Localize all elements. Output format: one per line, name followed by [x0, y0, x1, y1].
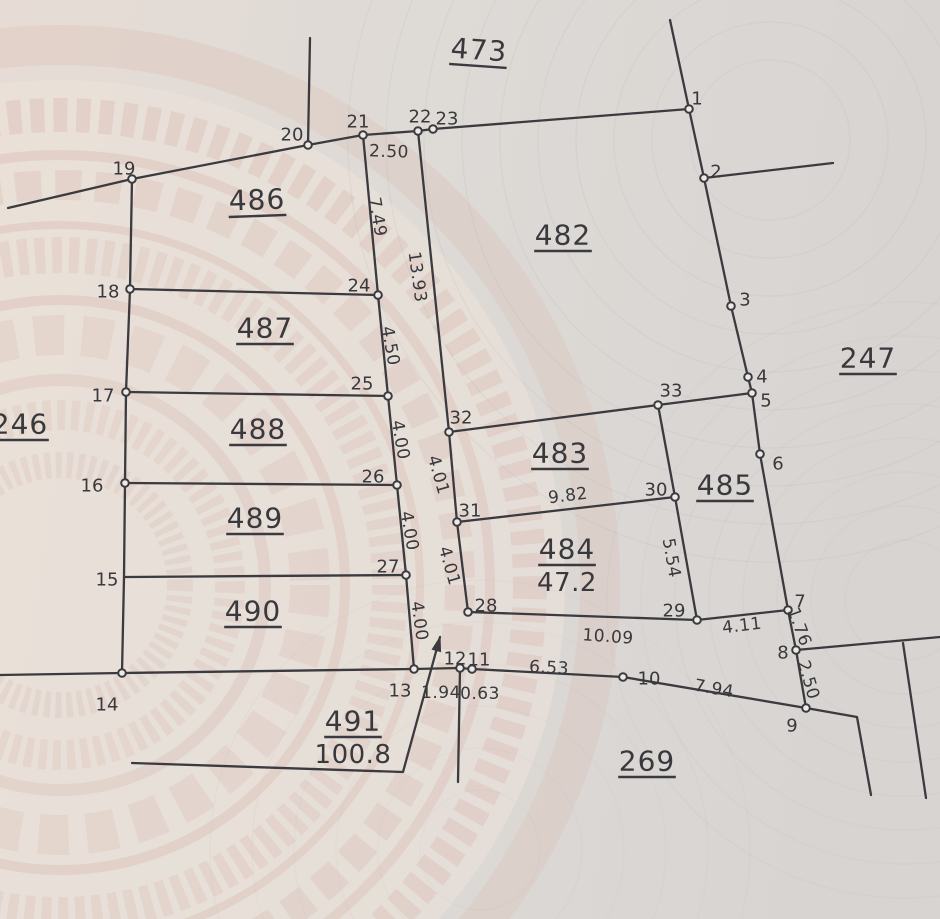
point-number-8: 8: [777, 643, 788, 664]
parcel-number: 485: [697, 469, 753, 502]
parcel-number: 473: [450, 32, 509, 69]
survey-point-22: [414, 127, 422, 135]
point-number-20: 20: [281, 125, 304, 146]
point-number-22: 22: [409, 107, 432, 128]
cadastral-map-svg: 1234567891011121314151617181920212223242…: [0, 0, 940, 919]
point-number-13: 13: [389, 681, 412, 702]
parcel-label-246: 246: [0, 408, 49, 441]
point-number-1: 1: [691, 89, 702, 110]
point-number-24: 24: [348, 276, 371, 297]
parcel-number: 269: [619, 745, 675, 778]
parcel-number: 247: [840, 342, 896, 375]
parcel-label-269: 269: [618, 745, 676, 778]
parcel-number: 246: [0, 408, 48, 441]
parcel-label-247: 247: [839, 342, 897, 375]
edge-length-label: 0.63: [460, 684, 500, 704]
edge-length-label: 6.53: [529, 657, 570, 679]
point-number-11: 11: [468, 650, 491, 671]
parcel-label-473: 473: [449, 32, 509, 69]
survey-point-29: [693, 616, 701, 624]
survey-point-6: [756, 450, 764, 458]
survey-point-4: [744, 373, 752, 381]
parcel-label-482: 482: [534, 219, 592, 252]
point-number-25: 25: [351, 374, 374, 395]
parcel-area: 100.8: [315, 740, 392, 770]
parcel-number: 484: [539, 533, 595, 566]
point-number-28: 28: [475, 596, 498, 617]
survey-point-17: [122, 388, 130, 396]
parcel-number: 486: [228, 183, 286, 218]
point-number-19: 19: [113, 159, 136, 180]
parcel-number: 491: [325, 705, 381, 738]
survey-point-16: [121, 479, 129, 487]
point-number-18: 18: [97, 282, 120, 303]
point-number-26: 26: [362, 467, 385, 488]
parcel-label-488: 488: [229, 413, 287, 446]
parcel-number: 482: [535, 219, 591, 252]
edge-length-label: 1.94: [421, 683, 461, 703]
parcel-number: 488: [230, 413, 286, 446]
parcel-label-489: 489: [226, 502, 284, 535]
point-number-27: 27: [377, 557, 400, 578]
survey-point-13: [410, 665, 418, 673]
point-number-17: 17: [92, 386, 115, 407]
survey-point-24: [374, 291, 382, 299]
survey-point-2: [700, 174, 708, 182]
parcel-number: 489: [227, 502, 283, 535]
survey-point-10: [619, 673, 627, 681]
parcel-label-483: 483: [531, 437, 589, 470]
edge-length-label: 10.09: [582, 625, 634, 649]
point-number-32: 32: [450, 408, 473, 429]
survey-point-18: [126, 285, 134, 293]
point-number-5: 5: [760, 391, 771, 412]
point-number-4: 4: [756, 367, 767, 388]
survey-point-30: [671, 493, 679, 501]
parcel-label-491: 491100.8: [315, 705, 392, 771]
point-number-3: 3: [739, 290, 750, 311]
point-number-9: 9: [786, 716, 797, 737]
parcel-label-487: 487: [236, 312, 294, 345]
parcel-label-490: 490: [224, 595, 282, 628]
survey-point-20: [304, 141, 312, 149]
survey-point-3: [727, 302, 735, 310]
survey-point-28: [464, 608, 472, 616]
point-number-23: 23: [436, 109, 459, 130]
point-number-14: 14: [96, 695, 119, 716]
parcel-label-486: 486: [228, 183, 287, 218]
point-number-33: 33: [660, 381, 683, 402]
survey-point-27: [402, 571, 410, 579]
survey-point-14: [118, 669, 126, 677]
parcel-area: 47.2: [537, 568, 597, 598]
parcel-label-484: 48447.2: [537, 533, 597, 599]
cadastral-map-sheet: 1234567891011121314151617181920212223242…: [0, 0, 940, 919]
point-number-29: 29: [663, 601, 686, 622]
point-number-12: 12: [444, 649, 467, 670]
cadastral-map: 1234567891011121314151617181920212223242…: [0, 0, 940, 919]
point-number-30: 30: [645, 480, 668, 501]
survey-point-9: [802, 704, 810, 712]
point-number-16: 16: [81, 476, 104, 497]
survey-point-25: [384, 392, 392, 400]
point-number-10: 10: [638, 669, 661, 690]
point-number-2: 2: [710, 162, 721, 183]
parcel-number: 483: [532, 437, 588, 470]
parcel-label-485: 485: [696, 469, 754, 502]
edge-length-label: 2.50: [369, 141, 410, 162]
point-number-15: 15: [96, 570, 119, 591]
point-number-31: 31: [459, 501, 482, 522]
parcel-number: 487: [237, 312, 293, 345]
survey-point-32: [445, 428, 453, 436]
survey-point-5: [748, 389, 756, 397]
point-number-6: 6: [772, 454, 783, 475]
parcel-number: 490: [225, 595, 281, 628]
survey-point-26: [393, 481, 401, 489]
point-number-21: 21: [347, 112, 370, 133]
survey-point-33: [654, 401, 662, 409]
